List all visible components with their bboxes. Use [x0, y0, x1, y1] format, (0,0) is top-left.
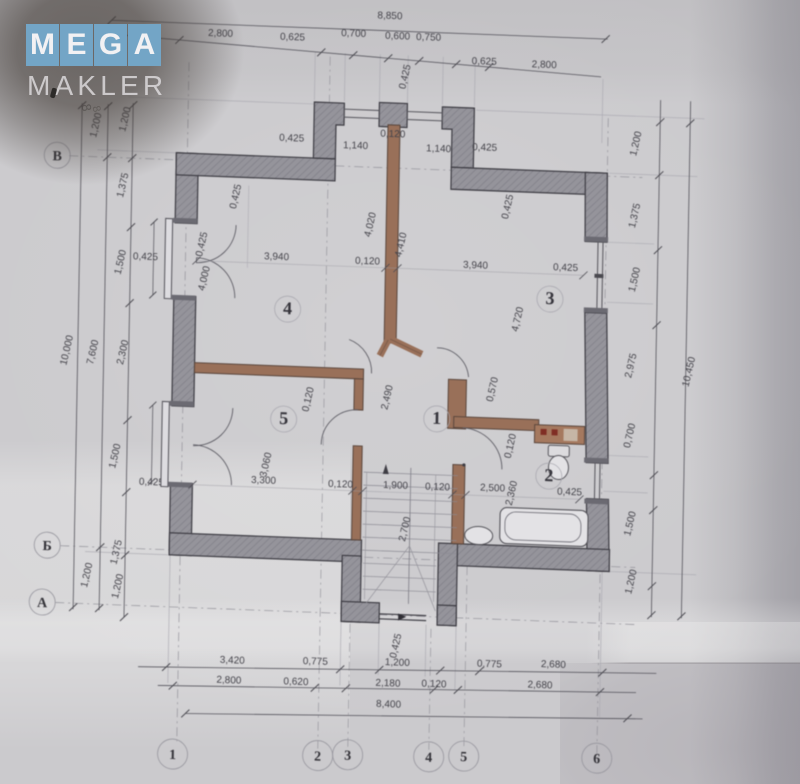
svg-text:2,500: 2,500	[480, 483, 506, 495]
svg-text:2,680: 2,680	[527, 680, 553, 692]
svg-text:1,500: 1,500	[113, 248, 129, 275]
svg-text:3,060: 3,060	[258, 451, 274, 478]
svg-text:2: 2	[314, 749, 321, 764]
svg-text:10,450: 10,450	[681, 355, 699, 388]
svg-text:0,120: 0,120	[328, 479, 354, 491]
svg-text:1,140: 1,140	[426, 143, 452, 155]
svg-text:0,425: 0,425	[472, 142, 498, 154]
svg-text:1: 1	[169, 748, 176, 763]
svg-text:0,700: 0,700	[341, 28, 367, 40]
svg-text:1,200: 1,200	[79, 561, 95, 588]
svg-text:4,000: 4,000	[197, 265, 213, 292]
svg-text:0,775: 0,775	[477, 659, 503, 671]
svg-text:1,200: 1,200	[110, 572, 126, 599]
svg-text:0,600: 0,600	[385, 31, 411, 43]
svg-text:1,375: 1,375	[109, 538, 125, 565]
svg-text:1,500: 1,500	[107, 442, 123, 469]
svg-text:4: 4	[283, 298, 292, 318]
svg-text:5: 5	[460, 750, 467, 765]
svg-text:6: 6	[593, 752, 600, 767]
svg-text:0,120: 0,120	[380, 129, 406, 141]
svg-text:А: А	[37, 596, 48, 611]
svg-text:3: 3	[344, 749, 351, 764]
svg-text:0,425: 0,425	[553, 262, 579, 274]
svg-text:0,425: 0,425	[557, 486, 583, 498]
svg-text:1,500: 1,500	[627, 266, 643, 293]
svg-text:2,800: 2,800	[216, 675, 242, 687]
svg-text:8,400: 8,400	[376, 699, 402, 711]
svg-text:0,700: 0,700	[622, 422, 638, 449]
svg-text:2,490: 2,490	[379, 384, 395, 411]
svg-text:0,425: 0,425	[388, 632, 404, 659]
svg-text:0,570: 0,570	[485, 376, 501, 403]
svg-text:1: 1	[432, 408, 441, 428]
svg-text:0,120: 0,120	[421, 678, 447, 690]
svg-text:0,120: 0,120	[355, 256, 381, 268]
svg-text:1,900: 1,900	[383, 480, 409, 492]
svg-text:0,425: 0,425	[133, 251, 159, 263]
svg-text:2,700: 2,700	[397, 515, 413, 542]
svg-text:0,425: 0,425	[397, 63, 413, 90]
svg-text:2: 2	[544, 465, 553, 485]
svg-text:4,020: 4,020	[363, 211, 379, 238]
svg-text:5: 5	[279, 408, 288, 428]
svg-text:4,720: 4,720	[510, 305, 526, 332]
svg-text:2,360: 2,360	[504, 479, 520, 506]
svg-text:2,180: 2,180	[375, 678, 401, 690]
svg-text:3,940: 3,940	[463, 260, 489, 272]
svg-text:Б: Б	[42, 539, 52, 554]
svg-text:10,000: 10,000	[58, 334, 76, 367]
svg-text:0,120: 0,120	[425, 481, 451, 493]
svg-text:0,625: 0,625	[472, 56, 498, 68]
svg-text:0,775: 0,775	[303, 656, 329, 668]
svg-text:1,500: 1,500	[622, 510, 638, 537]
svg-text:1,200: 1,200	[628, 130, 644, 157]
svg-text:8,850: 8,850	[377, 10, 403, 22]
svg-text:7,600: 7,600	[85, 338, 101, 365]
svg-text:1,140: 1,140	[343, 140, 369, 152]
svg-text:0,120: 0,120	[503, 432, 519, 459]
svg-text:2,680: 2,680	[541, 659, 567, 671]
svg-text:0,425: 0,425	[500, 193, 516, 220]
svg-text:0,620: 0,620	[283, 676, 309, 688]
svg-text:2,800: 2,800	[532, 59, 558, 71]
svg-text:3,420: 3,420	[220, 655, 246, 667]
svg-text:3: 3	[545, 288, 554, 308]
svg-text:1,375: 1,375	[627, 202, 643, 229]
svg-text:4: 4	[425, 751, 432, 766]
svg-text:3,940: 3,940	[264, 251, 290, 263]
svg-text:2,975: 2,975	[623, 352, 639, 379]
svg-text:0,425: 0,425	[194, 230, 210, 257]
svg-text:0,120: 0,120	[300, 386, 316, 413]
svg-text:0,750: 0,750	[416, 32, 442, 44]
